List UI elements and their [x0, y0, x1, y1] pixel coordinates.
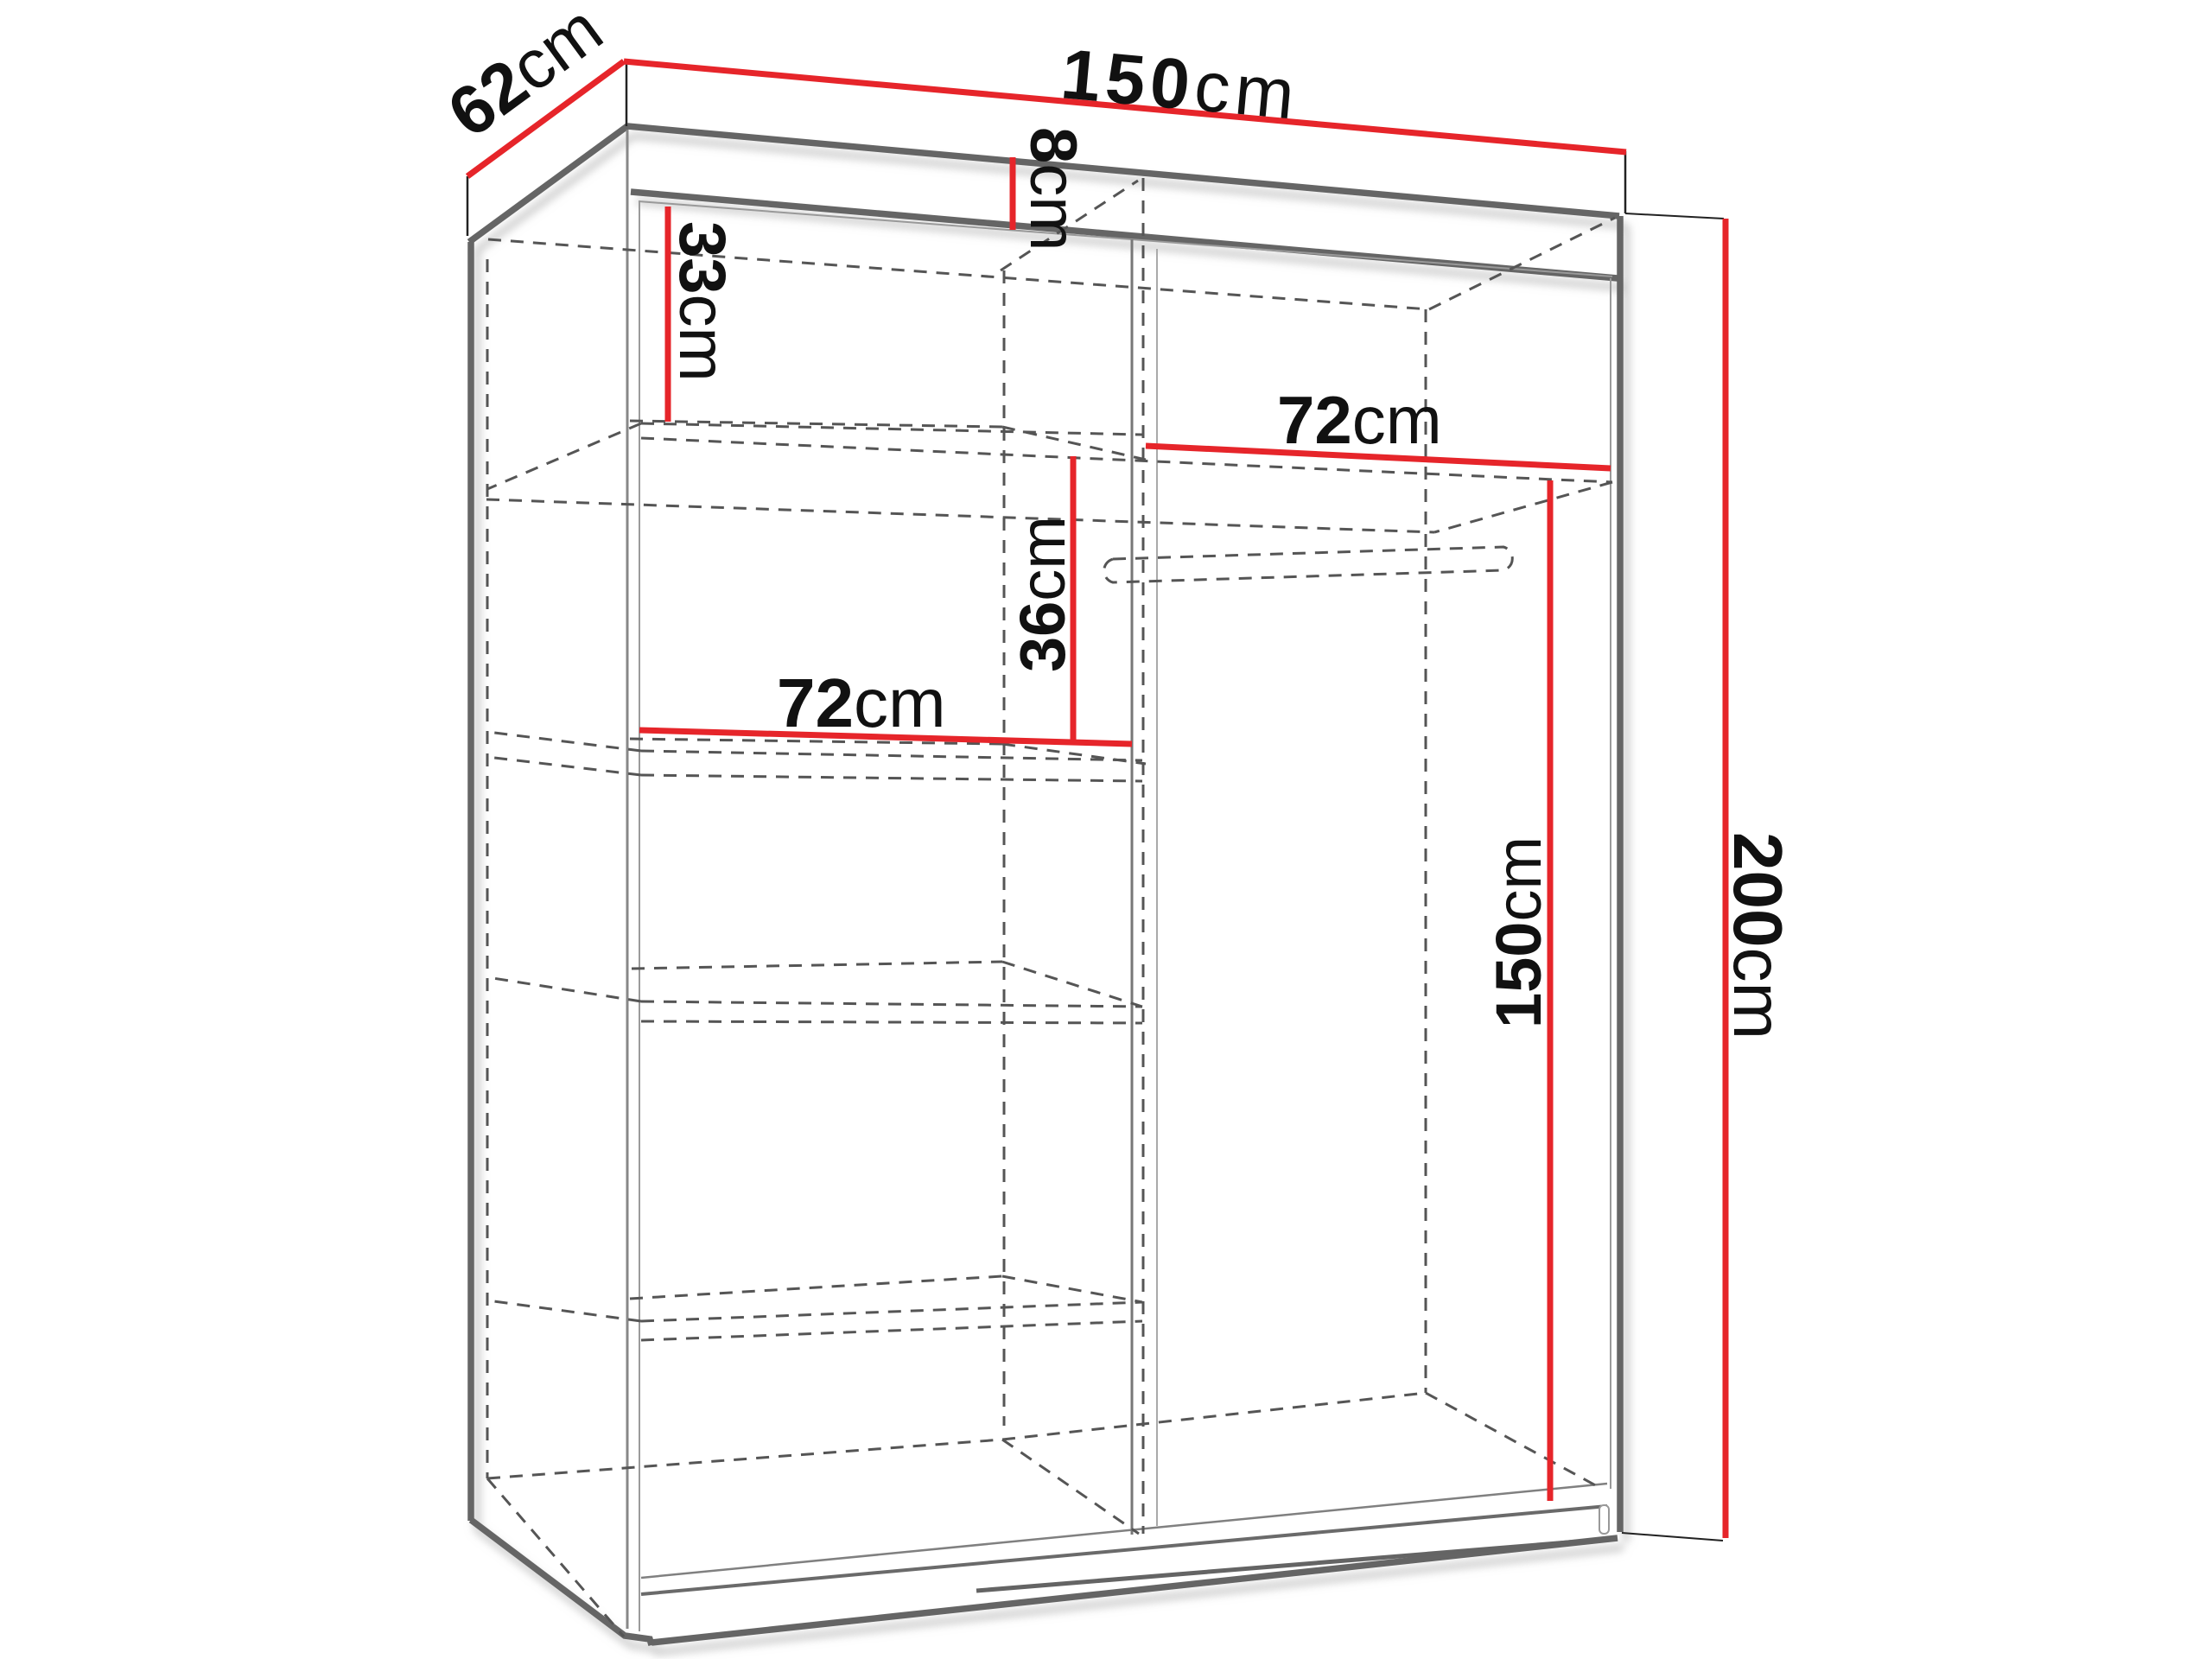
svg-text:8cm: 8cm [1016, 127, 1090, 251]
svg-text:72cm: 72cm [1277, 382, 1442, 458]
svg-text:36cm: 36cm [1007, 516, 1078, 672]
svg-text:72cm: 72cm [777, 664, 946, 741]
svg-text:200cm: 200cm [1719, 832, 1796, 1039]
svg-text:33cm: 33cm [665, 221, 739, 382]
svg-text:150cm: 150cm [1483, 836, 1554, 1028]
